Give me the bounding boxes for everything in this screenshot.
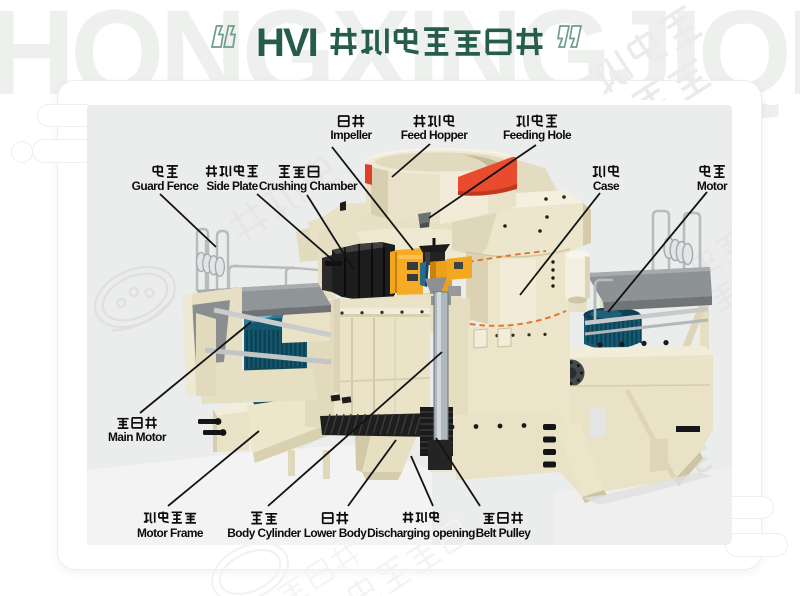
svg-text:Lower Body: Lower Body (304, 526, 367, 540)
svg-text:Feed Hopper: Feed Hopper (401, 128, 469, 142)
svg-text:Crushing Chamber: Crushing Chamber (259, 179, 358, 193)
svg-text:Belt Pulley: Belt Pulley (476, 526, 532, 540)
svg-text:Motor Frame: Motor Frame (137, 526, 204, 540)
svg-text:Feeding Hole: Feeding Hole (503, 128, 572, 142)
svg-text:Guard Fence: Guard Fence (132, 179, 200, 193)
svg-text:HVI: HVI (256, 21, 317, 65)
svg-text:Side Plate: Side Plate (206, 179, 258, 193)
svg-text:Case: Case (593, 179, 620, 193)
svg-text:Motor: Motor (697, 179, 728, 193)
svg-text:Body Cylinder: Body Cylinder (227, 526, 301, 540)
svg-text:Main Motor: Main Motor (108, 430, 167, 444)
svg-text:Impeller: Impeller (330, 128, 372, 142)
svg-text:Discharging opening: Discharging opening (367, 526, 475, 540)
